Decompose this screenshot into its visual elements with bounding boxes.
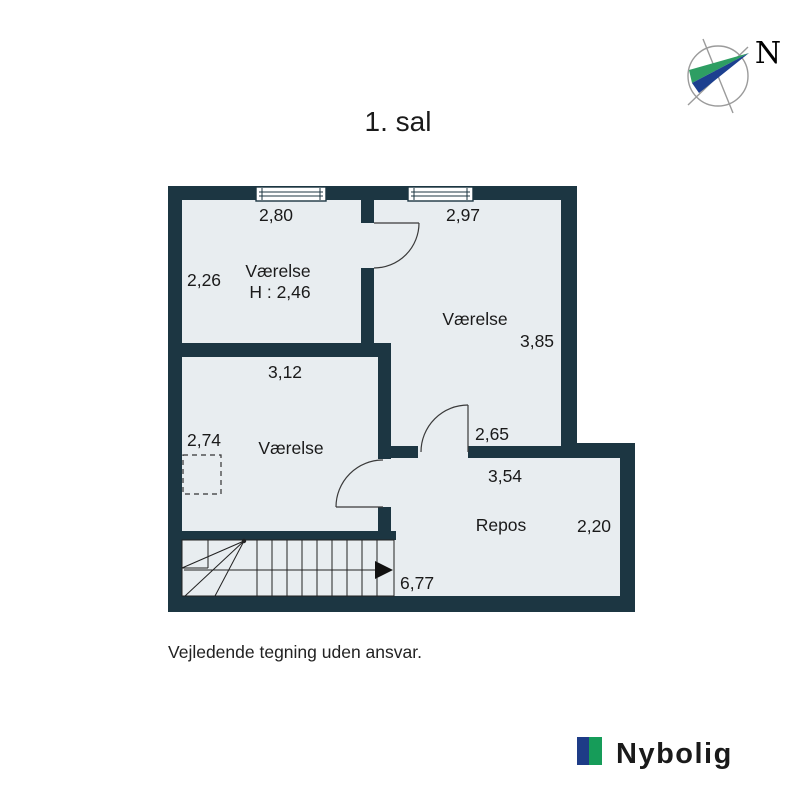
dim-room2-width: 2,97 <box>446 205 480 225</box>
window-symbol-room2 <box>408 187 473 201</box>
dim-stairs-run: 6,77 <box>400 573 434 593</box>
room1-ceiling-height: H : 2,46 <box>249 282 310 302</box>
wall-room3-right-lower <box>378 507 391 533</box>
dim-room2-depth: 3,85 <box>520 331 554 351</box>
logo-wordmark: Nybolig <box>616 738 733 770</box>
page-title: 1. sal <box>365 106 432 137</box>
repos-name: Repos <box>476 515 527 535</box>
wall-room3-bottom <box>168 531 396 540</box>
winder-pivot <box>242 539 246 543</box>
dim-room3-depth: 2,74 <box>187 430 221 450</box>
dim-repos-width: 3,54 <box>488 466 522 486</box>
wall-repos-left <box>391 446 418 458</box>
wall-divider-lower <box>361 268 374 343</box>
logo-mark-blue <box>577 737 589 765</box>
dim-room1-depth: 2,26 <box>187 270 221 290</box>
wall-divider-stub <box>361 200 374 223</box>
floorplan-page: N 1. sal <box>0 0 800 800</box>
disclaimer-text: Vejledende tegning uden ansvar. <box>168 642 422 662</box>
dim-repos-depth: 2,20 <box>577 516 611 536</box>
nybolig-logo: Nybolig <box>577 737 733 770</box>
dim-room3-width: 3,12 <box>268 362 302 382</box>
wall-room3-right-upper <box>378 357 391 459</box>
north-label: N <box>755 36 781 71</box>
floorplan-drawing: N 1. sal <box>0 0 800 800</box>
wall-room1-bottom <box>168 343 391 357</box>
room1-name: Værelse <box>245 261 310 281</box>
room2-name: Værelse <box>442 309 507 329</box>
dim-room2-door-wall: 2,65 <box>475 424 509 444</box>
room3-name: Værelse <box>258 438 323 458</box>
wall-repos-right <box>468 446 577 458</box>
compass-icon: N <box>688 36 781 113</box>
logo-mark-green <box>589 737 602 765</box>
window-symbol-room1 <box>256 187 326 201</box>
dim-room1-width: 2,80 <box>259 205 293 225</box>
